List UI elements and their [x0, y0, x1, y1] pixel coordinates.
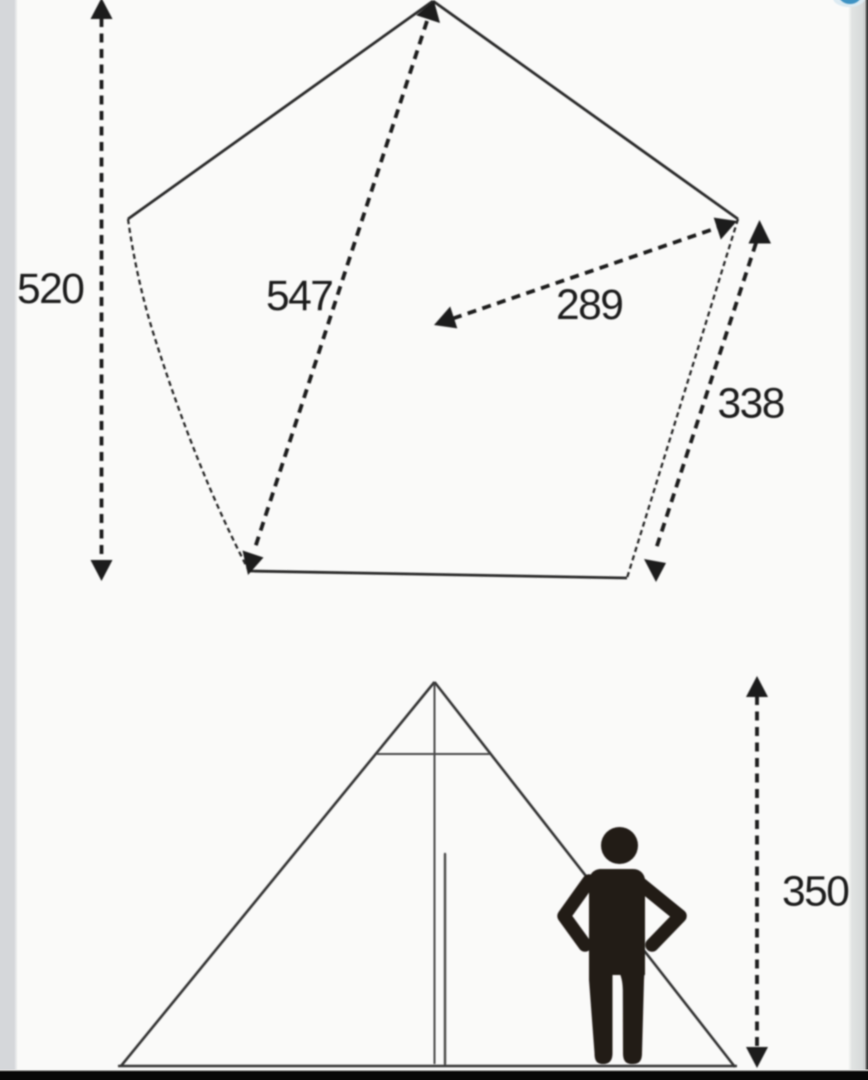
svg-text:547: 547	[266, 273, 332, 320]
svg-text:289: 289	[556, 282, 622, 329]
svg-text:350: 350	[782, 869, 848, 916]
svg-text:338: 338	[718, 381, 784, 428]
svg-text:520: 520	[17, 266, 83, 313]
